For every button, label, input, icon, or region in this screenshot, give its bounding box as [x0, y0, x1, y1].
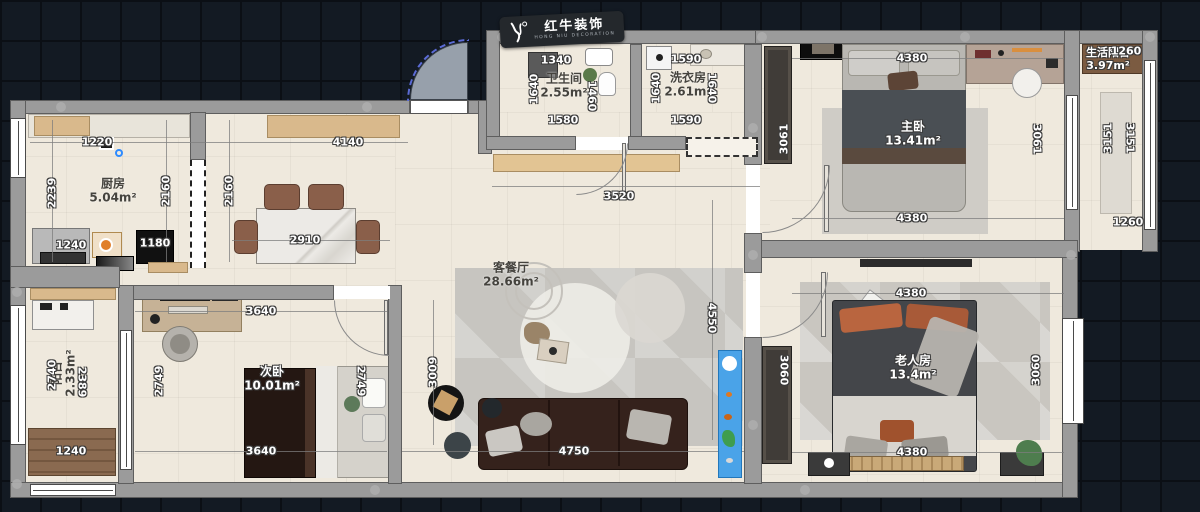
kitchen-wood-strip — [148, 262, 188, 273]
aquarium-lamp — [722, 356, 737, 371]
dim-label: 1260 — [1111, 45, 1142, 58]
dim-label: 2160 — [223, 176, 236, 207]
elder-media-strip — [860, 259, 972, 267]
second-door-threshold — [334, 286, 390, 299]
wall — [486, 136, 576, 150]
kitchen-sliding-door — [190, 160, 206, 268]
dim-label: 1640 — [650, 73, 663, 104]
dim-label: 1340 — [541, 54, 572, 67]
dresser-runner — [1012, 48, 1042, 52]
second-balcony-slider — [120, 330, 132, 470]
dim-label: 1640 — [528, 74, 541, 105]
kitchen-appliance — [40, 252, 86, 264]
wall — [755, 240, 1078, 258]
dimension-line — [492, 186, 760, 187]
floorplan-canvas: 红牛装饰 HONG NIU DECORATION 厨房5.04m² 卫生间2.5… — [0, 0, 1200, 512]
dim-label: 1260 — [1113, 216, 1144, 229]
master-balcony-slider — [1066, 95, 1078, 210]
elder-door-threshold — [746, 273, 760, 337]
second-pillow — [362, 414, 386, 442]
entry-threshold — [410, 100, 468, 114]
dining-chair — [308, 184, 344, 210]
gas-symbol-icon — [115, 149, 123, 157]
dim-label: 4380 — [897, 212, 928, 225]
dim-label: 4380 — [896, 287, 927, 300]
dim-label: 1180 — [140, 237, 171, 250]
dimension-line — [792, 218, 1064, 219]
dim-label: 1580 — [548, 114, 579, 127]
dim-label: 2389 — [76, 367, 89, 398]
lbalcony-window — [1144, 60, 1156, 230]
dim-label: 1590 — [671, 53, 702, 66]
dim-label: 1640 — [706, 73, 719, 104]
sofa-seam — [548, 400, 550, 466]
nightstand-cup — [824, 458, 834, 468]
wall-anchor-dot — [370, 485, 380, 495]
second-duvet — [316, 366, 338, 478]
dim-label: 3060 — [1030, 355, 1043, 386]
wall-anchor-dot — [748, 420, 758, 430]
dimension-line — [792, 58, 1064, 59]
bull-logo-icon — [509, 20, 530, 43]
washer-knob — [40, 303, 52, 310]
wall-anchor-dot — [1145, 32, 1155, 42]
dim-label: 1460 — [586, 81, 599, 112]
dimension-line — [792, 452, 1064, 453]
dim-label: 2910 — [290, 234, 321, 247]
dim-label: 1240 — [56, 239, 87, 252]
dim-label: 3061 — [1031, 124, 1044, 155]
dim-label: 4140 — [333, 136, 364, 149]
balcony-bottom-window — [30, 484, 116, 496]
balcony-window — [10, 305, 26, 445]
dim-label: 2160 — [160, 176, 173, 207]
wall — [388, 285, 402, 484]
dimension-line — [792, 293, 1064, 294]
dim-label: 3151 — [1124, 123, 1137, 154]
dim-label: 2749 — [355, 366, 368, 397]
wall-anchor-dot — [748, 250, 758, 260]
dim-label: 3640 — [246, 445, 277, 458]
aquarium-plant-icon — [722, 430, 735, 447]
master-door-threshold — [746, 165, 760, 233]
wall-anchor-dot — [1066, 250, 1076, 260]
washer-knob — [60, 303, 68, 310]
sofa-pillow — [520, 412, 552, 436]
office-chair-back — [170, 334, 190, 354]
wall-anchor-dot — [12, 479, 22, 489]
master-blanket-fold — [842, 148, 966, 164]
wall-anchor-dot — [960, 32, 970, 42]
elder-window — [1062, 318, 1084, 424]
dim-label: 1240 — [56, 445, 87, 458]
brand-logo: 红牛装饰 HONG NIU DECORATION — [499, 11, 624, 48]
wall — [486, 30, 500, 150]
food-plate — [99, 238, 113, 252]
room-label-living-dining: 客餐厅28.66m² — [483, 261, 539, 290]
dining-chair — [234, 220, 258, 254]
laundry-items — [700, 49, 712, 59]
bathroom-sink — [585, 48, 613, 66]
wall — [190, 112, 206, 160]
room-label-bathroom: 卫生间2.55m² — [540, 72, 587, 101]
dim-label: 4380 — [897, 52, 928, 65]
round-rug-small — [615, 273, 685, 343]
pouf — [444, 432, 471, 459]
dining-chair — [264, 184, 300, 210]
coffee-table-dot — [549, 347, 557, 355]
dim-label: 3060 — [778, 355, 791, 386]
wall — [10, 482, 1078, 498]
sofa-seam — [618, 400, 620, 466]
dim-label: 1590 — [671, 114, 702, 127]
second-cushion — [344, 396, 360, 412]
wall — [10, 266, 120, 288]
wall — [630, 44, 642, 150]
dim-label: 2749 — [153, 366, 166, 397]
dim-label: 1220 — [82, 136, 113, 149]
dim-label: 4750 — [559, 445, 590, 458]
dim-label: 3009 — [427, 357, 440, 388]
room-label-elder: 老人房13.4m² — [889, 354, 936, 383]
desk-mic — [150, 314, 160, 324]
laundry-pass-opening — [686, 137, 758, 157]
entry-door-arc — [407, 39, 469, 101]
dim-label: 2239 — [46, 178, 59, 209]
pouf-small — [482, 398, 502, 418]
wall-anchor-dot — [757, 32, 767, 42]
wall — [755, 30, 1158, 44]
dining-chair — [356, 220, 380, 254]
dim-label: 3520 — [604, 190, 635, 203]
wall-anchor-dot — [56, 102, 66, 112]
dresser-frame — [1046, 58, 1058, 68]
dresser-item — [975, 50, 991, 58]
dim-label: 2740 — [46, 360, 59, 391]
room-label-master: 主卧13.41m² — [885, 120, 941, 149]
toilet — [598, 72, 616, 96]
dim-label: 4550 — [706, 303, 719, 334]
room-label-kitchen: 厨房5.04m² — [89, 177, 136, 206]
aquarium-fish-icon — [726, 392, 732, 397]
master-cushion — [887, 70, 919, 91]
room-label-second: 次卧10.01m² — [244, 365, 300, 394]
wall — [628, 136, 686, 150]
wall — [10, 100, 410, 114]
dresser-item — [998, 50, 1004, 56]
kitchen-window — [10, 118, 26, 178]
kitchen-cabinet — [34, 116, 90, 136]
wall — [744, 337, 762, 484]
wall — [118, 285, 334, 300]
aquarium-fish-icon — [724, 414, 732, 420]
elder-plant — [1016, 440, 1042, 466]
dim-label: 4380 — [897, 446, 928, 459]
keyboard — [168, 306, 208, 314]
dim-label: 3061 — [778, 124, 791, 155]
master-stool — [1012, 68, 1042, 98]
wall-anchor-dot — [362, 102, 372, 112]
aquarium-fish-icon — [726, 458, 733, 463]
wall-anchor-dot — [800, 485, 810, 495]
balcony-shelf — [30, 288, 116, 300]
dim-label: 3640 — [246, 305, 277, 318]
dim-label: 3151 — [1102, 123, 1115, 154]
washer-door-icon — [656, 54, 663, 61]
wall-anchor-dot — [12, 287, 22, 297]
wall-anchor-dot — [748, 123, 758, 133]
